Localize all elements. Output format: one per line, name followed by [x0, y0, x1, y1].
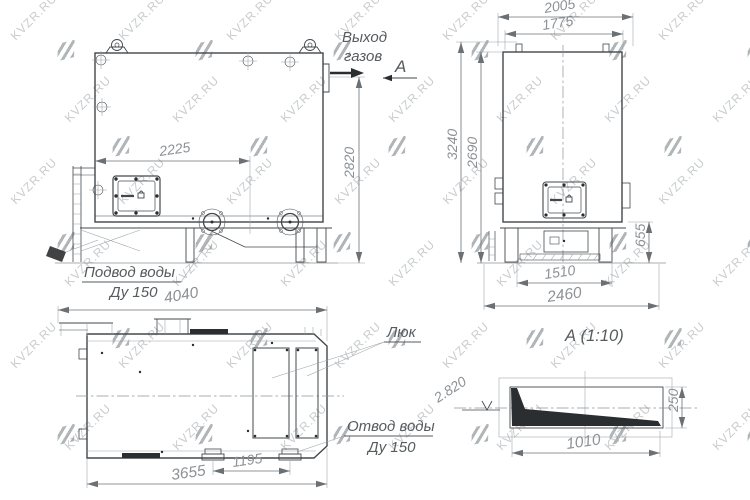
dim-2690: 2690 [464, 52, 503, 263]
dim-2820-value: 2820 [341, 147, 357, 179]
hatch-label: Люк [272, 324, 421, 378]
top-hatch [296, 348, 318, 438]
dim-3655-value: 3655 [170, 462, 207, 484]
drawing-canvas: 2225 2820 Выход газов А [0, 0, 750, 500]
dim-2225-value: 2225 [157, 139, 191, 159]
detail-a-title: А (1:10) [564, 327, 624, 345]
lug-plate [190, 329, 228, 334]
dim-1010-value: 1010 [565, 431, 602, 453]
dim-3240-value: 3240 [444, 129, 460, 160]
dim-1195-value: 1195 [231, 450, 263, 470]
dim-655: 655 [628, 222, 653, 263]
dim-655-value: 655 [632, 223, 648, 247]
dim-1195: 1195 [213, 450, 290, 475]
top-hatch [253, 348, 289, 438]
water-nozzle-flange [277, 209, 303, 235]
section-view-mark: А [383, 57, 417, 81]
deflector-wedge [511, 388, 661, 426]
padlock-icon [138, 191, 144, 198]
gas-outlet-stub [323, 64, 329, 92]
lifting-lug [299, 40, 321, 54]
lifting-lug [106, 40, 128, 54]
water-supply-text-1: Подвод воды [84, 264, 175, 281]
flow-arrow-icon [330, 68, 364, 78]
technical-drawing-sheet: KVZR.RUKVZR.RUKVZR.RUKVZR.RUKVZR.RUKVZR.… [0, 0, 750, 500]
dim-1010: 1010 [512, 431, 660, 457]
water-supply-text-2: Ду 150 [108, 284, 158, 301]
side-support-base [489, 228, 626, 262]
water-outlet-text-1: Отвод воды [347, 418, 435, 435]
lug-plate [122, 453, 160, 458]
dim-1510: 1510 [517, 261, 612, 287]
side-view: 1775 2005 3240 2690 655 [444, 0, 666, 310]
dim-1510-value: 1510 [543, 262, 576, 282]
elevation-value: 2.820 [430, 373, 469, 406]
section-letter: А [394, 57, 406, 76]
water-outlet-text-2: Ду 150 [366, 439, 416, 456]
gas-outlet-text-2: газов [344, 48, 382, 65]
gas-outlet-label: Выход газов [330, 29, 387, 78]
dim-2820: 2820 [329, 77, 365, 263]
dim-2690-value: 2690 [464, 137, 480, 169]
elevation-arrow-icon [482, 401, 492, 410]
front-view: 2225 2820 Выход газов А [46, 29, 417, 301]
dim-250: 250 [665, 387, 687, 428]
dim-2460-value: 2460 [545, 284, 583, 306]
dim-4040-value: 4040 [163, 284, 200, 307]
padlock-icon [566, 195, 572, 202]
elevation-mark: 2.820 [430, 373, 500, 410]
front-hatch-door [113, 176, 160, 216]
dim-250-value: 250 [665, 388, 681, 413]
position-markers [89, 51, 299, 199]
hatch-label-text: Люк [386, 324, 417, 341]
ladder [46, 166, 140, 262]
side-hatch-door [543, 182, 586, 218]
section-arrow-icon [383, 75, 392, 81]
detail-a-view: А (1:10) 1010 250 2.820 [430, 327, 697, 457]
top-view: 4040 1195 3655 Люк Отвод воды [58, 284, 435, 488]
gas-outlet-text-1: Выход [342, 29, 387, 46]
dim-3240: 3240 [444, 42, 517, 263]
